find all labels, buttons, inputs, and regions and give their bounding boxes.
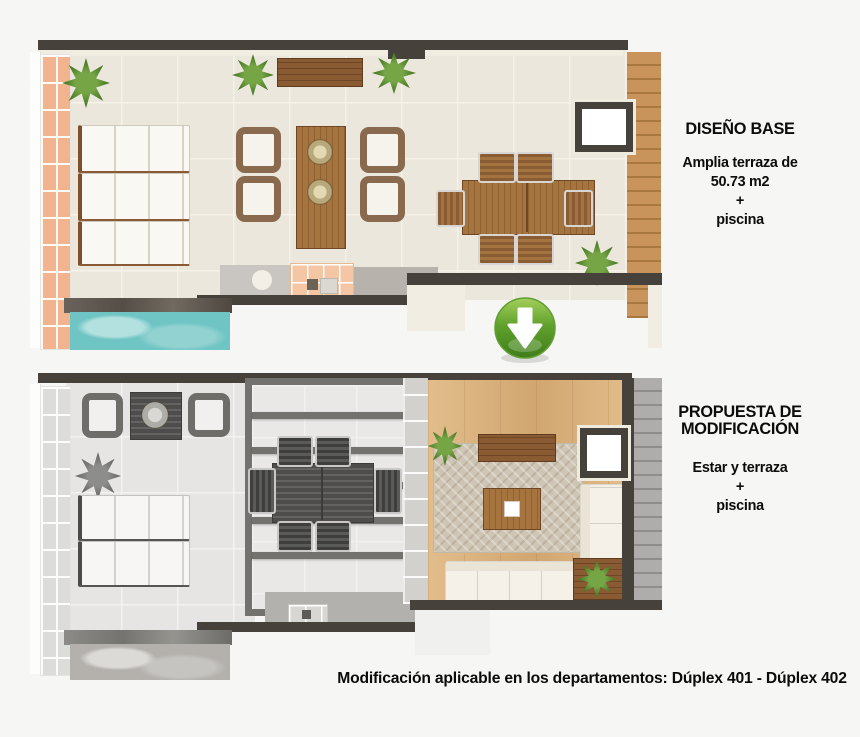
dining-table-split: [526, 181, 528, 232]
lower-floor-cut: [415, 610, 490, 655]
pergola-beam: [252, 552, 417, 559]
wall-ledge: [38, 49, 623, 56]
proposal-caption: PROPUESTA DE MODIFICACIÓN Estar y terraz…: [649, 403, 831, 515]
base-design-title: DISEÑO BASE: [649, 120, 831, 137]
down-arrow-icon: [493, 296, 557, 364]
plant: [428, 426, 462, 466]
footer-note: Modificación aplicable en los departamen…: [318, 670, 860, 688]
pool-edge: [64, 298, 232, 313]
base-design-line: +: [649, 191, 831, 210]
sun-lounger: [78, 125, 190, 173]
plant: [577, 560, 617, 598]
bottom-wall-living: [410, 600, 662, 610]
dining-chair-gray: [374, 468, 402, 514]
floor-plan-base: [30, 28, 662, 350]
armchair-gray: [82, 393, 123, 438]
lower-floor-cut: [648, 285, 662, 348]
sun-lounger: [78, 221, 190, 266]
table-tray: [504, 501, 520, 517]
lightwell-window: [580, 428, 628, 478]
sun-lounger: [78, 173, 190, 221]
proposal-line: +: [649, 477, 831, 496]
lower-floor-cut: [407, 285, 465, 331]
proposal-title: PROPUESTA DE MODIFICACIÓN: [649, 403, 831, 437]
wicker-armchair: [236, 127, 281, 173]
base-design-caption: DISEÑO BASE Amplia terraza de 50.73 m2 +…: [649, 120, 831, 229]
right-wall: [622, 378, 634, 604]
wicker-armchair: [360, 176, 405, 222]
dining-table-split: [321, 464, 323, 520]
base-design-line: Amplia terraza de: [649, 153, 831, 172]
counter-sink-round: [252, 270, 272, 290]
console-table: [277, 58, 363, 87]
sofa-section: [580, 484, 623, 560]
proposal-line: piscina: [649, 496, 831, 515]
decor-plate: [308, 140, 332, 164]
bottom-wall-dining: [407, 273, 662, 285]
tv-console: [478, 434, 556, 462]
armchair-gray: [188, 393, 230, 437]
island-sink: [302, 610, 311, 619]
marketing-floorplan-graphic: DISEÑO BASE Amplia terraza de 50.73 m2 +…: [0, 0, 860, 737]
wicker-armchair: [360, 127, 405, 173]
plant: [62, 58, 110, 108]
bottom-wall-terrace: [197, 622, 447, 632]
dining-chair: [564, 190, 593, 227]
dining-chair: [436, 190, 465, 227]
dining-chair: [516, 234, 554, 265]
dining-chair: [478, 152, 516, 183]
sun-lounger-gray: [78, 495, 190, 541]
wicker-armchair: [236, 176, 281, 222]
plant: [372, 52, 416, 94]
pool-water-gray: [70, 644, 230, 680]
base-design-line: 50.73 m2: [649, 172, 831, 191]
plant: [232, 54, 274, 96]
pool-edge-gray: [64, 630, 232, 645]
proposal-line: Estar y terraza: [649, 458, 831, 477]
base-design-line: piscina: [649, 210, 831, 229]
dining-chair-gray: [277, 436, 313, 467]
sun-lounger-gray: [78, 541, 190, 587]
dining-chair-gray: [277, 521, 313, 552]
dining-chair-gray: [315, 436, 351, 467]
decor-plate: [142, 402, 168, 428]
floor-plan-proposal: [30, 370, 662, 680]
decor-plate: [308, 180, 332, 204]
lightwell-window: [575, 102, 633, 152]
plant-gray: [75, 452, 121, 500]
dining-chair-gray: [248, 468, 276, 514]
dining-chair-gray: [315, 521, 351, 552]
glass-wall: [403, 378, 428, 604]
sofa-section: [445, 561, 575, 603]
top-wall: [38, 40, 628, 50]
dining-chair: [516, 152, 554, 183]
island-sink: [307, 279, 318, 290]
pool-water: [70, 312, 230, 350]
dining-table-gray: [272, 463, 374, 523]
island-hob: [320, 278, 338, 294]
dining-chair: [478, 234, 516, 265]
pergola-beam: [252, 412, 417, 419]
